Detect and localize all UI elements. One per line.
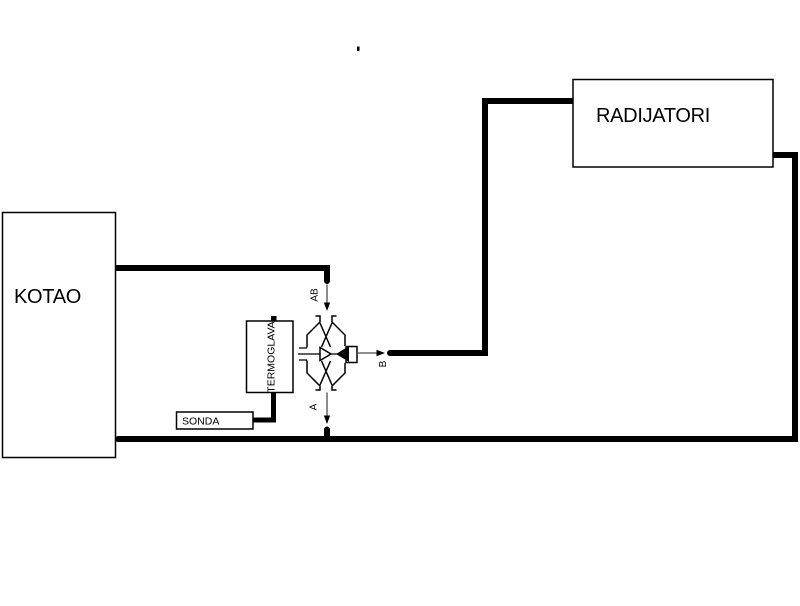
- valve-body-upper-right: [332, 316, 345, 346]
- valve-plug-left-triangle: [320, 348, 331, 361]
- valve-port-ab-label: AB: [310, 288, 321, 302]
- sonda-label: SONDA: [182, 416, 219, 428]
- valve-inner-cone-bottom: [320, 361, 332, 385]
- valve-outlet-pipe-to-radijatori: [390, 101, 574, 353]
- ab-arrow-head: [324, 303, 330, 312]
- b-arrow-head: [377, 350, 386, 356]
- termoglava-top-tick: [271, 316, 277, 322]
- radijatori-label: RADIJATORI: [596, 105, 710, 127]
- a-arrow-head: [324, 416, 330, 425]
- valve-body-lower-right: [332, 363, 345, 390]
- valve-plug-right-triangle: [337, 347, 349, 361]
- sonda-capillary-cable: [252, 393, 274, 420]
- valve-port-a-label: A: [309, 403, 320, 410]
- valve-inner-cone-top: [320, 323, 332, 347]
- heating-schematic: KOTAO RADIJATORI TERMOGLAVA SONDA AB A B: [0, 0, 800, 606]
- termoglava-label: TERMOGLAVA: [266, 321, 278, 392]
- supply-pipe-kotao-to-valve: [117, 268, 327, 281]
- kotao-box: [3, 213, 116, 458]
- return-pipe-radijatori-to-kotao: [118, 155, 795, 439]
- three-way-valve: [298, 316, 357, 390]
- valve-port-b-label: B: [378, 360, 389, 367]
- schematic-canvas: KOTAO RADIJATORI TERMOGLAVA SONDA AB A B: [0, 0, 800, 606]
- valve-body-upper-left: [307, 316, 320, 348]
- valve-body-lower-left: [307, 361, 320, 391]
- kotao-label: KOTAO: [14, 286, 81, 308]
- stray-mark: [357, 47, 360, 52]
